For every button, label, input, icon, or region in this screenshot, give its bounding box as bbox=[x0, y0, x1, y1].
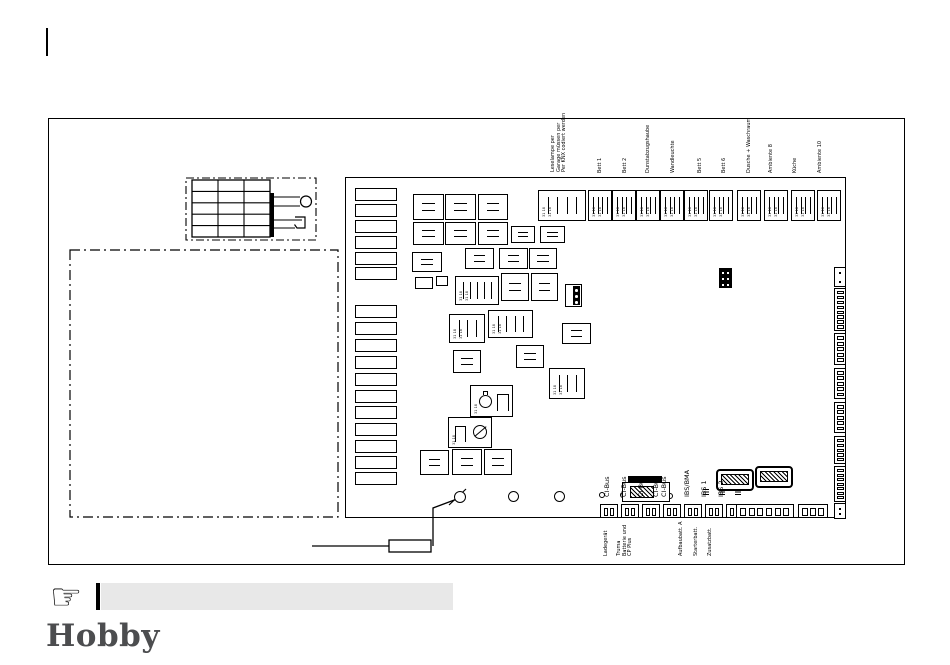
socket-pin bbox=[607, 197, 608, 214]
fuse bbox=[355, 188, 397, 201]
connector-pin-square bbox=[604, 508, 608, 516]
socket-pin bbox=[467, 320, 468, 336]
connector-pin-square bbox=[646, 508, 650, 516]
output-label: Bett 5 bbox=[698, 158, 704, 173]
fuse bbox=[355, 373, 397, 386]
output-label: Ambiente 8 bbox=[769, 144, 775, 173]
bus-label: CI-Bus bbox=[638, 476, 645, 497]
comb-tooth bbox=[837, 393, 844, 397]
bus-label: CI-Bus bbox=[604, 476, 611, 497]
fuse bbox=[355, 204, 397, 217]
socket-pin bbox=[805, 197, 806, 214]
comb-tooth bbox=[837, 382, 844, 386]
relay-contact-line bbox=[509, 283, 520, 284]
bus-label: CI-Bus bbox=[661, 476, 668, 497]
comb-tooth bbox=[837, 387, 844, 391]
supply-label-line: Ladegerät bbox=[604, 531, 610, 556]
relay-contact-line bbox=[518, 232, 528, 233]
edge-comb-connector bbox=[834, 288, 846, 331]
comb-tooth bbox=[837, 449, 844, 452]
knx-note-line: Per KNX codiert werden bbox=[562, 113, 568, 172]
comb-tooth bbox=[837, 444, 844, 447]
bus-label: CI-Bus bbox=[653, 476, 660, 497]
pin-code-label: 31 18 bbox=[452, 435, 456, 445]
connector-pin-square bbox=[766, 508, 772, 516]
note-bar bbox=[101, 583, 453, 610]
bus-label: IBS 1 bbox=[701, 480, 708, 497]
socket-pin bbox=[567, 197, 568, 214]
socket-pin bbox=[836, 197, 837, 214]
connector-pin-square bbox=[757, 508, 763, 516]
bottom-connector-block bbox=[705, 504, 723, 518]
manicule-icon: ☞ bbox=[50, 580, 82, 616]
bottom-connector-block bbox=[663, 504, 681, 518]
socket-pin bbox=[650, 197, 651, 214]
connector-pin-square bbox=[740, 508, 746, 516]
fuse bbox=[355, 390, 397, 403]
comb-tooth bbox=[837, 483, 844, 486]
socket-pin bbox=[698, 197, 699, 214]
relay bbox=[452, 449, 482, 475]
battery-grid-dashed-outline bbox=[186, 178, 316, 240]
comb-tooth bbox=[837, 421, 844, 425]
relay-contact-line bbox=[454, 203, 467, 204]
comb-tooth bbox=[837, 474, 844, 477]
relay bbox=[540, 226, 565, 243]
pin-code-label: 31 18 bbox=[801, 207, 805, 217]
fuse bbox=[355, 456, 397, 469]
socket-pin bbox=[567, 375, 568, 392]
socket-pin bbox=[655, 197, 656, 214]
fuse bbox=[355, 267, 397, 280]
jumper-contact bbox=[722, 278, 724, 280]
connector-pin-square bbox=[694, 508, 698, 516]
output-label: Bett 6 bbox=[722, 158, 728, 173]
comb-tooth bbox=[837, 410, 844, 414]
relay-contact-line bbox=[487, 236, 499, 237]
relay bbox=[516, 345, 544, 368]
jumper-contact bbox=[727, 278, 729, 280]
jumper-contact bbox=[727, 284, 729, 286]
comb-tooth bbox=[837, 342, 844, 346]
socket-pin bbox=[515, 316, 516, 332]
connector-pin-square bbox=[652, 508, 656, 516]
comb-tooth bbox=[837, 469, 844, 472]
relay-contact-line bbox=[571, 330, 583, 331]
pin-code-label: 31 18 bbox=[498, 324, 502, 334]
relay-contact-line bbox=[421, 259, 433, 260]
pin-code-label: 31 18 bbox=[622, 207, 626, 217]
output-label: Bett 1 bbox=[598, 158, 604, 173]
comb-tooth bbox=[837, 291, 844, 294]
socket-pin bbox=[679, 197, 680, 214]
bottom-connector-block bbox=[798, 504, 828, 518]
connector-pin-square bbox=[810, 508, 816, 516]
battery-terminal-ring bbox=[301, 196, 312, 207]
fuse bbox=[355, 236, 397, 249]
relay-contact-line bbox=[429, 459, 441, 460]
comb-tooth bbox=[837, 358, 844, 362]
connector-pin-square bbox=[802, 508, 808, 516]
connector-pin-square bbox=[775, 508, 781, 516]
pin-code-label: 31 18 bbox=[694, 207, 698, 217]
socket-pin bbox=[557, 197, 558, 214]
socket-pin bbox=[810, 197, 811, 214]
relay bbox=[413, 194, 444, 220]
pin-code-label: 31 18 bbox=[542, 207, 546, 217]
comb-tooth bbox=[837, 439, 844, 442]
mounting-terminal bbox=[554, 491, 565, 502]
plug-contact bbox=[575, 301, 578, 304]
edge-comb-connector bbox=[834, 368, 846, 399]
relay bbox=[529, 248, 557, 269]
bottom-connector-block bbox=[621, 504, 639, 518]
pin-code-label: 31 18 bbox=[795, 207, 799, 217]
relay-contact-line bbox=[492, 465, 503, 466]
relay bbox=[501, 273, 529, 301]
fuse bbox=[355, 406, 397, 419]
relay bbox=[445, 222, 476, 245]
bracket-symbol bbox=[497, 394, 509, 411]
pin-code-label: 31 18 bbox=[459, 329, 463, 339]
relay-contact-line bbox=[508, 255, 520, 256]
socket-pin bbox=[470, 282, 471, 298]
comb-tooth bbox=[837, 311, 844, 314]
relay bbox=[413, 222, 444, 245]
connector-pin-square bbox=[715, 508, 719, 516]
bottom-connector-block bbox=[600, 504, 618, 518]
socket-pin bbox=[831, 197, 832, 214]
ibs-socket-1-contacts bbox=[721, 474, 749, 485]
socket-pin bbox=[756, 197, 757, 214]
plug-contact bbox=[575, 295, 578, 298]
pin-code-label: 31 18 bbox=[553, 385, 557, 395]
socket-pin bbox=[723, 197, 724, 214]
relay-contact-line bbox=[537, 255, 548, 256]
relay-contact-line bbox=[537, 261, 548, 262]
jumper-contact bbox=[722, 284, 724, 286]
relay-contact-line bbox=[508, 261, 520, 262]
socket-pin bbox=[463, 282, 464, 298]
spare-box bbox=[415, 277, 433, 289]
relay-contact-line bbox=[539, 283, 550, 284]
relay-contact-line bbox=[524, 359, 535, 360]
note-bar-divider bbox=[96, 583, 100, 610]
supply-label-line: Starterbatt. bbox=[694, 527, 700, 556]
comb-tooth bbox=[837, 492, 844, 495]
pin-code-label: 31 18 bbox=[741, 207, 745, 217]
mounting-terminal bbox=[454, 491, 466, 503]
connector-pin-square bbox=[730, 508, 734, 516]
pin-code-label: 31 18 bbox=[640, 207, 644, 217]
mounting-terminal bbox=[508, 491, 519, 502]
socket-pin bbox=[484, 282, 485, 298]
comb-tooth bbox=[837, 453, 844, 456]
fuse bbox=[355, 423, 397, 436]
terminal-dot bbox=[839, 508, 841, 510]
relay-contact-line bbox=[454, 210, 467, 211]
output-label: Wandleuchte bbox=[671, 140, 677, 173]
output-label: Dunstabzugshaube bbox=[646, 125, 652, 173]
fuse bbox=[355, 220, 397, 233]
socket-pin bbox=[523, 316, 524, 332]
coding-jumper-block bbox=[719, 268, 732, 288]
bus-label: CI-Bus bbox=[621, 476, 628, 497]
jumper-contact bbox=[727, 272, 729, 274]
supply-label: Zusatzbatt. bbox=[708, 527, 714, 556]
socket-pin bbox=[631, 197, 632, 214]
pin-code-label: 31 18 bbox=[559, 385, 563, 395]
edge-terminal-box bbox=[834, 503, 846, 519]
comb-tooth bbox=[837, 496, 844, 499]
socket-pin bbox=[728, 197, 729, 214]
pin-code-label: 31 18 bbox=[827, 207, 831, 217]
edge-comb-connector bbox=[834, 333, 846, 365]
comb-tooth bbox=[837, 301, 844, 304]
relay-contact-line bbox=[429, 465, 441, 466]
connector-pin-square bbox=[625, 508, 629, 516]
relay bbox=[453, 350, 481, 373]
relay-contact-line bbox=[461, 364, 472, 365]
bracket-symbol bbox=[455, 426, 466, 442]
relay-contact-line bbox=[524, 353, 535, 354]
relay-contact-line bbox=[487, 203, 499, 204]
comb-tooth bbox=[837, 405, 844, 409]
relay-contact-line bbox=[547, 232, 557, 233]
relay bbox=[465, 248, 494, 269]
pin-code-label: 31 18 bbox=[768, 207, 772, 217]
relay-contact-line bbox=[422, 230, 435, 231]
relay-contact-line bbox=[474, 255, 486, 256]
terminal-dot bbox=[839, 513, 841, 515]
battery-terminal-hook bbox=[295, 217, 306, 228]
relay-contact-line bbox=[492, 458, 503, 459]
relay-contact-line bbox=[422, 203, 435, 204]
supply-label: Aufbaubatt. A bbox=[679, 521, 685, 556]
comb-tooth bbox=[837, 336, 844, 340]
relay bbox=[478, 222, 508, 245]
relay-contact-line bbox=[539, 290, 550, 291]
terminal-dot bbox=[839, 272, 841, 274]
pin-code-label: 31 18 bbox=[774, 207, 778, 217]
pin-code-label: 31 18 bbox=[664, 207, 668, 217]
relay-contact-line bbox=[487, 210, 499, 211]
socket-pin bbox=[626, 197, 627, 214]
pin-code-label: 31 18 bbox=[747, 207, 751, 217]
socket-pin bbox=[491, 282, 492, 298]
edge-comb-connector bbox=[834, 466, 846, 502]
pin-code-label: 31 18 bbox=[821, 207, 825, 217]
comb-tooth bbox=[837, 325, 844, 328]
connector-pin-square bbox=[610, 508, 614, 516]
comb-tooth bbox=[837, 353, 844, 357]
pin-code-label: 31 18 bbox=[713, 207, 717, 217]
relay-contact-line bbox=[422, 236, 435, 237]
relay bbox=[531, 273, 558, 301]
relay-contact-line bbox=[421, 264, 433, 265]
jumper-contact bbox=[722, 272, 724, 274]
ibs-socket-2-contacts bbox=[760, 471, 788, 482]
edge-comb-connector bbox=[834, 402, 846, 433]
socket-pin bbox=[783, 197, 784, 214]
socket-pin bbox=[506, 316, 507, 332]
fuse bbox=[355, 339, 397, 352]
comb-tooth bbox=[837, 478, 844, 481]
socket-pin bbox=[476, 320, 477, 336]
bus-label: IBS 2 bbox=[718, 480, 725, 497]
comb-tooth bbox=[837, 347, 844, 351]
relay-contact-line bbox=[461, 465, 473, 466]
fuse bbox=[355, 472, 397, 485]
page-tick-mark bbox=[46, 28, 48, 56]
connector-pin-square bbox=[818, 508, 824, 516]
bus-label: IBS/BMA bbox=[684, 470, 691, 497]
output-label: Dusche + Waschraum bbox=[747, 118, 753, 173]
spare-box bbox=[436, 276, 448, 286]
pin-code-label: 31 18 bbox=[646, 207, 650, 217]
buzzer-cap bbox=[483, 391, 488, 395]
relay-contact-line bbox=[461, 458, 473, 459]
pin-code-label: 31 18 bbox=[492, 324, 496, 334]
relay-contact-line bbox=[461, 358, 472, 359]
relay bbox=[445, 194, 476, 220]
pin-code-label: 31 18 bbox=[616, 207, 620, 217]
comb-tooth bbox=[837, 296, 844, 299]
bottom-connector-block bbox=[736, 504, 794, 518]
pin-code-label: 31 18 bbox=[598, 207, 602, 217]
connector-pin-square bbox=[783, 508, 789, 516]
pin-code-label: 31 18 bbox=[688, 207, 692, 217]
relay bbox=[499, 248, 528, 269]
relay bbox=[420, 450, 449, 475]
supply-label-line: Zusatzbatt. bbox=[708, 527, 714, 556]
output-label: Ambiente 10 bbox=[818, 141, 824, 173]
connector-pin-square bbox=[667, 508, 671, 516]
supply-label-line: CP Plus bbox=[628, 525, 634, 556]
socket-pin bbox=[674, 197, 675, 214]
relay-contact-line bbox=[518, 236, 528, 237]
connector-pin-square bbox=[749, 508, 755, 516]
relay-contact-line bbox=[547, 236, 557, 237]
terminal-dot bbox=[839, 281, 841, 283]
hobby-logo: Hobby bbox=[46, 618, 160, 654]
supply-label: TrumaBatterie undCP Plus bbox=[617, 525, 634, 556]
socket-pin bbox=[778, 197, 779, 214]
socket-pin bbox=[703, 197, 704, 214]
comb-tooth bbox=[837, 487, 844, 490]
relay bbox=[562, 323, 591, 344]
relay-contact-line bbox=[454, 230, 467, 231]
relay-contact-line bbox=[487, 230, 499, 231]
manual-page: ☞ Hobby 31 1831 1831 1831 1831 1831 1831… bbox=[0, 0, 950, 665]
pin-code-label: 31 18 bbox=[465, 291, 469, 301]
relay-contact-line bbox=[509, 290, 520, 291]
fuse bbox=[355, 356, 397, 369]
comb-tooth bbox=[837, 371, 844, 375]
pin-code-label: 31 18 bbox=[459, 291, 463, 301]
pin-code-label: 31 18 bbox=[592, 207, 596, 217]
socket-pin bbox=[751, 197, 752, 214]
fuse bbox=[355, 440, 397, 453]
socket-pin bbox=[576, 197, 577, 214]
relay-contact-line bbox=[571, 336, 583, 337]
pin-code-label: 31 18 bbox=[670, 207, 674, 217]
pin-code-label: 31 18 bbox=[719, 207, 723, 217]
edge-comb-connector bbox=[834, 436, 846, 464]
relay bbox=[484, 449, 512, 475]
comb-tooth bbox=[837, 458, 844, 461]
socket-pin bbox=[602, 197, 603, 214]
comb-tooth bbox=[837, 416, 844, 420]
output-label: Küche bbox=[793, 158, 799, 173]
three-pin-plug bbox=[565, 284, 582, 307]
pin-code-label: 31 18 bbox=[548, 207, 552, 217]
relay bbox=[478, 194, 508, 220]
relay-contact-line bbox=[474, 261, 486, 262]
buzzer-circle-symbol bbox=[479, 395, 492, 408]
comb-tooth bbox=[837, 315, 844, 318]
output-label: Bett 2 bbox=[623, 158, 629, 173]
battery-grid-block bbox=[183, 173, 323, 243]
comb-tooth bbox=[837, 306, 844, 309]
connector-pin-square bbox=[709, 508, 713, 516]
plug-contact bbox=[575, 289, 578, 292]
bottom-connector-block bbox=[642, 504, 660, 518]
connector-pin-square bbox=[688, 508, 692, 516]
pin-code-label: 31 18 bbox=[474, 404, 478, 414]
fuse bbox=[355, 252, 397, 265]
edge-terminal-box bbox=[834, 267, 846, 287]
relay bbox=[412, 252, 442, 272]
comb-tooth bbox=[837, 320, 844, 323]
fuse bbox=[355, 322, 397, 335]
supply-label: Starterbatt. bbox=[694, 527, 700, 556]
relay bbox=[511, 226, 535, 243]
knx-note: Leselampe perGarage müssen perPer KNX co… bbox=[551, 113, 568, 172]
bottom-connector-block bbox=[684, 504, 702, 518]
comb-tooth bbox=[837, 376, 844, 380]
supply-label: Ladegerät bbox=[604, 531, 610, 556]
connector-pin-square bbox=[673, 508, 677, 516]
comb-tooth bbox=[837, 427, 844, 431]
connector-pin-square bbox=[631, 508, 635, 516]
supply-label-line: Aufbaubatt. A bbox=[679, 521, 685, 556]
relay-contact-line bbox=[454, 236, 467, 237]
pin-code-label: 31 18 bbox=[453, 329, 457, 339]
relay-contact-line bbox=[422, 210, 435, 211]
socket-pin bbox=[576, 375, 577, 392]
socket-pin bbox=[477, 282, 478, 298]
fuse bbox=[355, 305, 397, 318]
